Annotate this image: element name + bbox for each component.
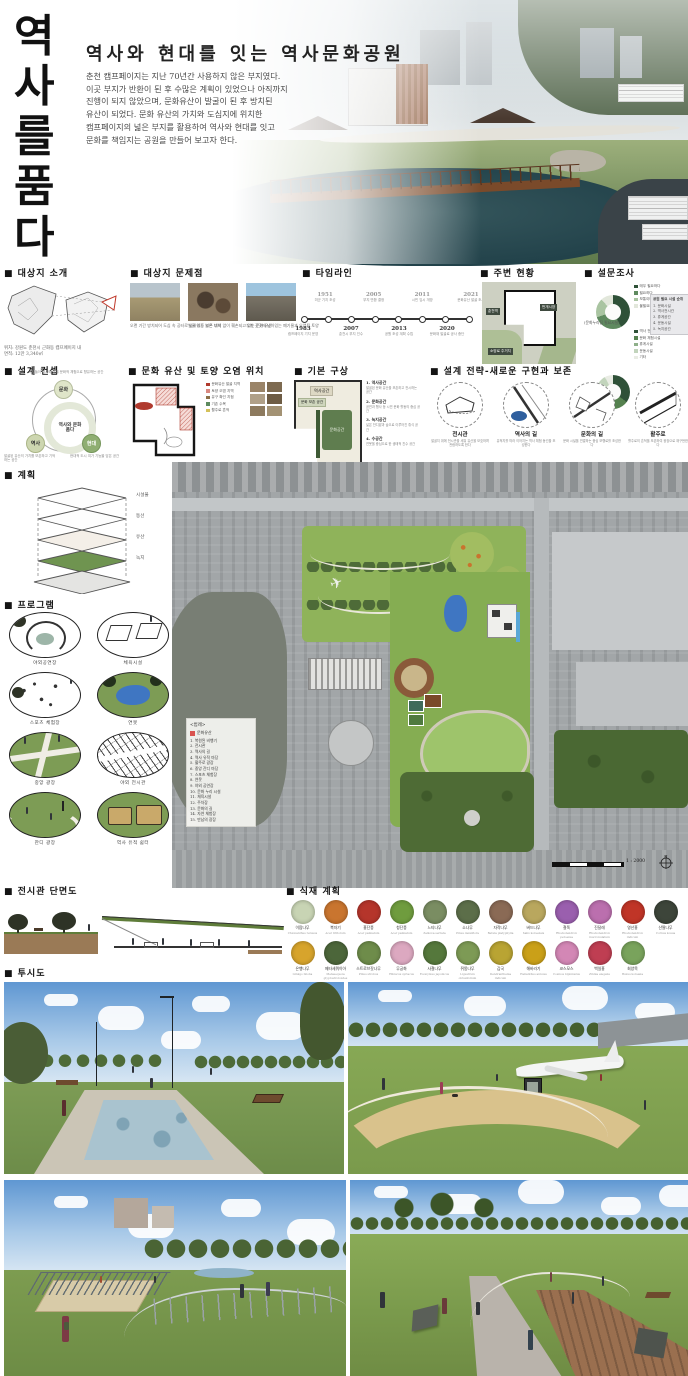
program-vignette [97,732,169,778]
city-block [576,662,688,726]
strategy-label: 역사의 길 [496,430,556,438]
concept-center-label: 역사와 문화 품다 [57,423,83,434]
section-planting: ■ 식재 계획 이팝나무 Chionanthus retusus 복자기 Ace… [286,884,686,966]
section-header: ■ 전시관 단면도 [4,884,282,897]
green-patch [482,330,522,364]
strategy-sketch [437,382,483,428]
plant-latin-name: Rhododendron indicum [616,931,649,939]
section-header: ■ 설계 전략-새로운 구현과 보존 [430,364,688,377]
person-figure [150,615,152,622]
plant-latin-name: Acer palmatum [385,931,418,935]
relic-foundation [136,805,162,825]
plant-latin-name: Pinus strobus [352,972,385,976]
forest-dome [464,810,480,826]
timeline-node [301,316,308,323]
timeline-node [442,316,449,323]
strategy-items: 전시관 발굴지 위에 전시관을 세워 유산을 보호하며 관람하도록 한다 역사의… [430,382,688,447]
stage-pond [36,633,54,645]
legend-item: 매우 필요하다 [634,284,670,289]
plant-photo [291,900,315,924]
legend-label: 휴게시설 [640,342,653,347]
person-figure [644,1100,646,1110]
heritage-legend: 문화유산 발굴 지역 토양 오염 지역 유구 확인 지점 기존 수목 [206,382,248,415]
problem-photo-artifacts [188,283,238,321]
plan-note-desc: 연못을 중심으로 한 생태적 친수 공간 [366,442,420,446]
section-program: ■ 프로그램 야외공연장 체육시설 [4,598,174,890]
program-label: 야외공연장 [4,660,86,666]
legend-label: 문화유산 발굴 지역 [212,382,241,387]
legend-swatch [206,383,210,387]
master-plan-aerial: ✈ <범례> 문화유산 1. 복원된 비행기2. 전시관3. [172,462,688,888]
person-figure [496,1074,498,1081]
legend-swatch [634,291,638,295]
plant-photo [522,941,546,965]
scale-text: 1 : 2000 [626,859,645,864]
plant-photo [423,900,447,924]
legend-label: 기타 [640,355,647,360]
layer-label: 유산 [136,534,149,540]
strategy-exhibition: 전시관 발굴지 위에 전시관을 세워 유산을 보호하며 관람하도록 한다 [430,382,490,447]
legend-label: 활주로 흔적 [212,408,230,413]
plant-photo [522,900,546,924]
timeline-node [466,316,473,323]
legend-item: 활주로 흔적 [206,408,248,413]
program-label: 역사 유적 쉼터 [92,840,174,846]
lamppost [172,996,173,1088]
problem-caption: 발굴 이후 보존 대책 없이 훼손되고 있는 문화 유산 [188,323,238,328]
plant-photo [357,941,381,965]
legend-swatch [634,336,638,340]
heritage-site-map [128,380,202,460]
program-central-plaza: 중앙 광장 [4,732,86,786]
plant-latin-name: Buxus koreana [616,972,649,976]
plant-item: 복자기 Acer triflorum [319,900,352,939]
timeline-event-desc: 공원 조성 계획 수립 [376,332,422,336]
plant-photo [621,900,645,924]
north-label: N [664,854,668,859]
intro-line: 이곳 부지가 반환이 된 후 수많은 계획이 있었으나 아직까지 [86,83,326,96]
section-basic-plan: ■ 기본 구상 역사공간 문화 보존 공간 문화공간 1. 역사공간 발굴된 문… [294,364,422,464]
program-vignette [97,792,169,838]
legend-swatch [206,409,210,413]
zone-culture: 문화공간 [322,410,352,450]
plant-item: 무궁화 Hibiscus syriacus [385,941,418,980]
tree-blob [150,675,162,686]
background-building [114,1198,148,1228]
person-figure [528,1330,533,1350]
legend-item: 문화 체험시설 [634,336,670,341]
section-header: ■ 식재 계획 [286,884,686,897]
plant-item: 철쭉 Rhododendron yedoense [550,900,583,939]
intro-paragraph: 춘천 캠프페이지는 지난 70년간 사용하지 않은 부지였다.이곳 부지가 반환… [86,70,326,146]
cloud [54,1196,88,1208]
program-label: 잔디 광장 [4,840,86,846]
person-figure [132,1066,134,1073]
plant-photo [324,900,348,924]
problem-photo-rubble [246,283,296,321]
interior-floor [114,946,282,948]
tree-trunk [63,926,65,933]
plant-photo [588,941,612,965]
plant-latin-name: Ginkgo biloba [286,972,319,976]
basic-plan-notes: 1. 역사공간 발굴된 문화 유산을 보존하고 전시하는 공간 2. 문화공간 … [366,380,420,450]
plant-latin-name: Rhododendron mucronulatum [583,931,616,939]
zone-preserve-chip: 문화 보존 공간 [298,398,326,407]
plan-legend-list: 1. 복원된 비행기2. 전시관3. 역사의 길4. 역사 유적 마당5. 활주… [190,738,252,823]
tall-pines [390,1188,510,1224]
survey-caption-1: (문화누리집 필요시설) [584,320,620,326]
artifact-photo [250,394,265,404]
concept-node-modern: 현대 [82,434,101,453]
artifact-photo [267,382,282,392]
person-figure [70,677,72,684]
relic-foundation [108,807,132,825]
north-compass: N [658,854,674,874]
plant-photo [291,941,315,965]
rank-item: 5. 녹지공간 [653,327,688,333]
court [135,623,162,639]
bench [34,928,43,931]
sports-court [408,714,424,726]
program-label: 중앙 광장 [4,780,86,786]
concept-note: 시민들이 역사와 삶을 문화적 체험으로 향유하는 공간 [26,370,106,374]
tree-row [144,1228,346,1274]
background-building [152,1206,174,1228]
lower-urban-texture [172,850,688,888]
concept-note: 발굴된 유산의 가치를 보존하고 기억하는 공간 [4,454,58,463]
flag-marker [62,801,64,811]
map-label-chip: 소양로 주거지 [488,348,513,355]
artifact-photo [267,406,282,416]
perspective-runway-plaza [4,982,344,1174]
map-label-chip: 춘천역 [486,308,500,315]
person-figure [50,813,52,820]
person-figure [442,1298,447,1314]
heritage-photo-thumbnails [250,382,286,416]
plan-legend-item: 15. 만남의 광장 [190,817,252,823]
artifact-photo [250,406,265,416]
program-label: 야외 전시관 [92,780,174,786]
sports-court [424,694,442,708]
concept-note: 현대적 도시 여가 기능을 담은 공간 [70,454,124,458]
ground-soil [4,932,98,954]
program-vignette [9,732,81,778]
intro-line: 춘천 캠프페이지는 지난 70년간 사용하지 않은 부지였다. [86,70,326,83]
pond-sliver [194,1268,254,1278]
plant-latin-name: Chionanthus retusus [286,931,319,935]
person-figure [266,1282,270,1296]
plant-item: 진달래 Rhododendron mucronulatum [583,900,616,939]
person-figure [100,1276,102,1283]
person-figure [380,1292,385,1308]
plant-item: 이팝나무 Chionanthus retusus [286,900,319,939]
plant-item: 백일홍 Zinnia elegans [583,941,616,980]
hangar-building [308,658,382,690]
section-header: ■ 프로그램 [4,598,174,611]
plant-latin-name: Betula platyphylla [484,931,517,935]
plant-latin-name: Metasequoia glyptostroboides [319,972,352,980]
person-figure [248,940,250,947]
plant-photo [456,900,480,924]
east-forest [554,730,688,808]
surroundings-map: 춘천역 번개시장 소양로 주거지 [482,282,576,364]
artifact-photo [250,382,265,392]
program-relic-rest-area: 역사 유적 쉼터 [92,792,174,846]
perspective-airplane-lawn [348,982,688,1174]
exhibit-path [98,745,168,762]
timeline-event-desc: 미군 기지 조성 [302,298,348,302]
plant-latin-name: Acer triflorum [319,931,352,935]
exhibition-building [487,604,517,638]
tree-blob [12,615,26,627]
person-figure [440,1082,443,1094]
plant-latin-name: Pinus densiflora [451,931,484,935]
rank-list: 1. 문화시설2. 역사전시관3. 휴게공간4. 운동시설5. 녹지공간 [653,304,688,333]
person-figure [382,1078,385,1090]
display-case [200,942,214,948]
plant-item: 자작나무 Betula platyphylla [484,900,517,939]
amphitheater-ring [394,658,434,698]
cloud [378,990,412,1002]
legend-label: 토양 오염 지역 [212,389,234,394]
sports-court [408,700,424,712]
plant-latin-name: Zinnia elegans [583,972,616,976]
legend-label: 매우 필요하다 [640,284,661,289]
section-header: ■ 대상지 소개 [4,266,126,279]
program-amphitheater: 야외공연장 [4,612,86,666]
plant-photo [621,941,645,965]
plant-photo [324,941,348,965]
legend-item: 운동시설 [634,349,670,354]
program-lawn-plaza: 잔디 광장 [4,792,86,846]
problem-photo-vacant-site [130,283,180,321]
strategy-sketch [569,382,615,428]
legend-label: 유구 확인 지점 [212,395,234,400]
person-figure [26,807,28,814]
map-label-chip: 번개시장 [540,304,557,311]
section-header: ■ 문화 유산 및 토양 오염 위치 [128,364,290,377]
tree-trunk [17,926,19,933]
plan-note: 2. 문화공간 공연과 행사 등 시민 문화 활동의 중심 공간 [366,399,420,414]
legend-swatch [634,285,638,289]
legend-swatch [634,298,638,302]
program-vignette [97,612,169,658]
program-grid: 야외공연장 체육시설 스포츠 체험장 [4,612,174,852]
park-pond [444,595,467,632]
plant-item: 소나무 Pinus densiflora [451,900,484,939]
blue-water-edge [516,612,520,642]
plant-latin-name: Zelkova serrata [418,931,451,935]
legend-item: 토양 오염 지역 [206,389,248,394]
plant-latin-name: Cornus kousa [649,931,682,935]
tree-blob [12,687,24,698]
plant-item: 사철나무 Euonymus japonicus [418,941,451,980]
plant-item: 청단풍 Acer palmatum [385,900,418,939]
program-pond: 연못 [92,672,174,726]
program-label: 연못 [92,720,174,726]
legend-swatch [634,356,638,360]
tree-blob [102,675,116,687]
scale-bar [552,862,624,867]
section-strategy: ■ 설계 전략-새로운 구현과 보존 전시관 발굴지 위에 전시관을 세워 유산… [430,364,688,464]
section-timeline: ■ 타임라인 1951 미군 기지 조성 2005 부지 반환 결정 [302,266,476,362]
location-map [4,282,122,342]
timeline-event: 1951 미군 기지 조성 [302,292,348,302]
person-figure [24,737,26,744]
lawn-edge-path [9,809,80,838]
plan-note-desc: 공연과 행사 등 시민 문화 활동의 중심 공간 [366,405,420,414]
timeline-event: 2011 시민 임시 개방 [399,292,445,302]
person-figure [218,939,220,946]
plant-latin-name: Dendranthema indicum [484,972,517,980]
plant-item: 산딸나무 Cornus kousa [649,900,682,939]
railway-band [172,462,688,492]
site-area: 면적: 12만 3,340㎡ [4,352,126,358]
plant-item: 은행나무 Ginkgo biloba [286,941,319,980]
memorial-slab [634,1328,668,1359]
lamppost-arm [160,996,174,998]
legend-heritage-item: 문화유산 [190,730,252,736]
legend-swatch [206,389,210,393]
plant-photo [654,900,678,924]
pond-water [116,685,150,705]
person-figure [132,938,134,945]
person-figure [240,1284,244,1298]
person-figure [88,924,90,931]
planting-row-1: 이팝나무 Chionanthus retusus 복자기 Acer triflo… [286,900,686,939]
large-tree [300,982,344,1060]
hero-section: 역사를 품다 역사와 현대를 잇는 역사문화공원 춘천 캠프페이지는 지난 70… [0,0,688,264]
bench [56,1080,78,1085]
timeline-event-desc: 부지 반환 결정 [351,298,397,302]
legend-label: 기존 수목 [212,402,226,407]
legend-swatch [634,330,638,334]
legend-title: <범례> [190,722,252,728]
play-fence [27,1272,170,1295]
legend-label: 문화유산 [197,730,212,736]
program-vignette [9,672,81,718]
legend-swatch [634,349,638,353]
poster-vertical-title: 역사를 품다 [14,12,58,263]
plant-latin-name: Salix koreensis [517,931,550,935]
section-header: ■ 기본 구상 [294,364,422,377]
plant-item: 쥐똥나무 Ligustrum obtusifolium [451,941,484,980]
strategy-sketch [635,382,681,428]
strategy-desc: 발굴지 위에 전시관을 세워 유산을 보호하며 관람하도록 한다 [430,439,490,447]
poster-main-title: 역사와 현대를 잇는 역사문화공원 [86,40,405,66]
timeline-event: 1983 캠프페이지 기지 운영 [280,326,326,336]
plan-note: 3. 녹지공간 넓은 잔디밭과 숲으로 이루어진 휴식 공간 [366,417,420,432]
timeline-node [419,316,426,323]
layer-label: 시설물 [136,492,149,498]
concept-node-culture: 문화 [54,380,73,399]
timeline-node [348,316,355,323]
strategy-label: 전시관 [430,430,490,438]
artifact-photo [267,394,282,404]
legend-item: 유구 확인 지점 [206,395,248,400]
plant-item: 영산홍 Rhododendron indicum [616,900,649,939]
flower-grove [450,532,494,576]
strategy-runway: 활주로 활주로의 흔적을 보존하여 광장으로 재구현한다 [628,382,688,447]
intro-line: 진행이 되지 않았으며, 문화유산이 발굴이 된 후 방치된 [86,95,326,108]
strategy-label: 문화의 길 [562,430,622,438]
intro-line: 문화를 책임지는 공원을 만들어 보고자 한다. [86,134,326,147]
strategy-sketch [503,382,549,428]
legend-swatch [190,731,195,736]
plan-note-desc: 발굴된 문화 유산을 보존하고 전시하는 공간 [366,386,420,395]
plant-latin-name: Acer palmatum [352,931,385,935]
plant-photo [357,900,381,924]
plant-photo [423,941,447,965]
plant-photo [588,900,612,924]
planting-row-2: 은행나무 Ginkgo biloba 메타세쿼이아 Metasequoia gl… [286,941,686,980]
plan-legend-box: <범례> 문화유산 1. 복원된 비행기2. 전시관3. 역사의 길4. 역사 … [186,718,256,827]
survey-rank-box: 공원 필요 시설 순위 1. 문화시설2. 역사전시관3. 휴게공간4. 운동시… [650,294,688,335]
city-block [552,532,688,650]
timeline-event: 2020 문화재 발굴로 공사 중단 [424,326,470,336]
timeline-node [372,316,379,323]
strategy-desc: 유적지를 따라 이어지는 역사 체험 동선을 조성한다 [496,439,556,447]
timeline-event: 2007 춘천시 부지 인수 [328,326,374,336]
court [105,625,132,641]
plan-note: 1. 역사공간 발굴된 문화 유산을 보존하고 전시하는 공간 [366,380,420,395]
zone-culture-label: 문화공간 [330,427,345,433]
problem-caption: 오랜 기간 방치되어 도심 속 공터로 남아있는 넓은 부지 [130,323,180,328]
timeline-event-desc: 시민 임시 개방 [399,298,445,302]
plant-latin-name: Ligustrum obtusifolium [451,972,484,980]
section-concept: ■ 설계 컨셉 역사와 문화 품다 문화 역사 현대 시민들이 역사와 삶을 문… [4,364,124,464]
strategy-label: 활주로 [628,430,688,438]
section-exhibit-section-view: ■ 전시관 단면도 [4,884,282,966]
plant-latin-name: Cosmos bipinnatus [550,972,583,976]
timeline-event-desc: 문화재 발굴로 공사 중단 [424,332,470,336]
plant-photo [390,900,414,924]
strategy-desc: 문화 시설을 연결하는 중심 보행로를 조성한다 [562,439,622,447]
plant-item: 감국 Dendranthema indicum [484,941,517,980]
person-figure [190,939,192,946]
zone-green-edge [316,410,320,458]
person-figure [154,1276,156,1283]
section-header-perspectives: ■ 투시도 [4,966,45,979]
timeline-event: 2005 부지 반환 결정 [351,292,397,302]
zone-history-label: 역사공간 [310,386,333,396]
building-court [492,610,500,617]
person-figure [62,1100,66,1116]
plant-item: 해바라기 Helianthus annuus [517,941,550,980]
program-label: 스포츠 체험장 [4,720,86,726]
plan-note: 4. 수공간 연못을 중심으로 한 생태적 친수 공간 [366,436,420,446]
plant-photo [390,941,414,965]
main-road [172,498,688,511]
perspective-memorial-walk [350,1180,688,1376]
dog-figure [452,1094,458,1097]
person-figure [162,938,164,945]
plant-item: 느티나무 Zelkova serrata [418,900,451,939]
strategy-history-path: 역사의 길 유적지를 따라 이어지는 역사 체험 동선을 조성한다 [496,382,556,447]
section-site-intro: ■ 대상지 소개 위치: 강원도 춘천시 근화동 캠프페이지 내 면적: 12만… [4,266,126,358]
plant-photo [555,900,579,924]
intro-line: 유산이 되었다. 문화 유산의 가치와 도심지에 위치한 [86,108,326,121]
program-sports-facility: 체육시설 [92,612,174,666]
program-vignette [9,792,81,838]
section-problems: ■ 대상지 문제점 오랜 기간 방치되어 도심 속 공터로 남아있는 넓은 부지… [130,266,298,342]
layer-labels: 시설물동선유산녹지 [136,492,149,576]
vertical-road [534,498,549,852]
plant-latin-name: Euonymus japonicus [418,972,451,976]
timeline-node [325,316,332,323]
gas-holder [328,720,374,766]
section-header: ■ 대상지 문제점 [130,266,298,279]
